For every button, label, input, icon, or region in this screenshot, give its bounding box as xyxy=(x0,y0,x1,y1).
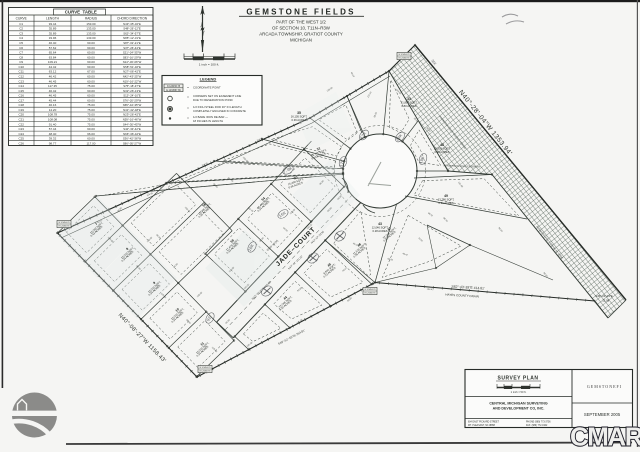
svg-text:N32°-26'-13"E: N32°-26'-13"E xyxy=(123,89,141,93)
svg-text:N85°-12'-31"E: N85°-12'-31"E xyxy=(123,36,141,40)
svg-text:1 inch = 100 ft.: 1 inch = 100 ft. xyxy=(199,63,220,67)
svg-text:N14°-30'-06"W: N14°-30'-06"W xyxy=(123,60,142,64)
svg-text:C17: C17 xyxy=(18,98,24,102)
svg-text:60.00: 60.00 xyxy=(87,75,95,79)
svg-text:N65°-42'-35"W: N65°-42'-35"W xyxy=(123,103,142,107)
svg-text:153.00: 153.00 xyxy=(86,22,96,26)
svg-text:60.00: 60.00 xyxy=(87,55,95,59)
svg-text:95.17: 95.17 xyxy=(517,294,523,296)
svg-text:S75°-18'-37"E: S75°-18'-37"E xyxy=(123,84,141,88)
svg-text:C9: C9 xyxy=(19,60,23,64)
svg-text:C11: C11 xyxy=(19,70,25,74)
svg-text:C23: C23 xyxy=(18,127,24,131)
svg-text:S76°-20'-29"W: S76°-20'-29"W xyxy=(123,98,142,102)
svg-text:C15: C15 xyxy=(18,89,24,93)
svg-text:S45°-23'-04"E: S45°-23'-04"E xyxy=(595,294,613,298)
svg-text:133.00: 133.00 xyxy=(86,27,96,31)
svg-text:75.00: 75.00 xyxy=(87,108,95,112)
svg-text:E 1234567.8: E 1234567.8 xyxy=(59,226,70,228)
svg-text:C6: C6 xyxy=(19,46,23,50)
svg-text:60.00: 60.00 xyxy=(87,60,95,64)
svg-text:C12: C12 xyxy=(18,75,24,79)
svg-text:C7: C7 xyxy=(19,51,23,55)
svg-text:46.16: 46.16 xyxy=(49,103,57,107)
svg-text:S37°-26'-44"E: S37°-26'-44"E xyxy=(123,46,141,50)
svg-text:46.45: 46.45 xyxy=(49,79,57,83)
svg-text:48: 48 xyxy=(440,143,444,147)
svg-text:N 123456.78: N 123456.78 xyxy=(200,367,211,369)
svg-text:C22: C22 xyxy=(18,122,24,126)
svg-text:117.00: 117.00 xyxy=(87,141,96,145)
svg-text:43: 43 xyxy=(378,222,382,226)
svg-text:0.43 ACRES: 0.43 ACRES xyxy=(434,150,449,154)
svg-text:OF SECTION 10, T11N–R3W: OF SECTION 10, T11N–R3W xyxy=(272,26,331,31)
svg-text:N 123456.78: N 123456.78 xyxy=(399,54,410,56)
svg-text:57.62: 57.62 xyxy=(49,46,57,50)
svg-text:60.00: 60.00 xyxy=(87,79,95,83)
svg-text:S42°-33'-42"E: S42°-33'-42"E xyxy=(123,127,141,131)
svg-text:21,891 SQFT,: 21,891 SQFT, xyxy=(401,101,418,105)
svg-text:PART OF THE WEST 1/2: PART OF THE WEST 1/2 xyxy=(276,20,326,25)
svg-text:60.00: 60.00 xyxy=(87,137,95,141)
svg-text:S48°-26'-12"E: S48°-26'-12"E xyxy=(123,27,141,31)
svg-text:S86°-05'-27"W: S86°-05'-27"W xyxy=(123,141,142,145)
svg-text:65.64: 65.64 xyxy=(49,51,57,55)
svg-text:33: 33 xyxy=(407,97,411,101)
svg-text:N19°-16'-22"W: N19°-16'-22"W xyxy=(123,79,142,83)
svg-text:0.31 ACRES: 0.31 ACRES xyxy=(438,201,453,205)
svg-text:E 1234567.8: E 1234567.8 xyxy=(399,58,410,60)
svg-text:N41°-42'-48"E: N41°-42'-48"E xyxy=(123,108,141,112)
svg-text:75.00: 75.00 xyxy=(87,103,95,107)
svg-text:46.42: 46.42 xyxy=(49,75,57,79)
svg-text:15,836 SQFT,: 15,836 SQFT, xyxy=(434,147,451,151)
svg-text:S87°-02'-21"E: S87°-02'-21"E xyxy=(123,41,141,45)
svg-text:46.40: 46.40 xyxy=(49,41,57,45)
svg-text:S21°-24'-35"W: S21°-24'-35"W xyxy=(123,51,142,55)
svg-text:60.00: 60.00 xyxy=(87,51,95,55)
svg-text:1 inch = 50 ft.: 1 inch = 50 ft. xyxy=(511,390,527,394)
svg-text:C20: C20 xyxy=(18,113,24,117)
svg-text:104.63: 104.63 xyxy=(427,289,435,291)
svg-text:N58°-51'-46"E: N58°-51'-46"E xyxy=(123,65,141,69)
svg-text:N 123456.78: N 123456.78 xyxy=(167,86,181,88)
svg-text:133.00: 133.00 xyxy=(86,32,96,36)
svg-text:FAX: (989) 772-1902: FAX: (989) 772-1902 xyxy=(526,424,548,427)
svg-text:C1: C1 xyxy=(19,22,23,26)
svg-text:0.28 ACRES: 0.28 ACRES xyxy=(372,229,387,233)
svg-text:33.96: 33.96 xyxy=(49,36,57,40)
svg-text:108.78: 108.78 xyxy=(48,113,58,117)
svg-text:E 1234567.89: E 1234567.89 xyxy=(166,90,181,92)
svg-text:60.00: 60.00 xyxy=(87,94,95,98)
svg-text:75.00: 75.00 xyxy=(87,118,95,122)
svg-text:35.89: 35.89 xyxy=(49,27,57,31)
svg-text:75.00: 75.00 xyxy=(87,84,95,88)
svg-text:60.00: 60.00 xyxy=(87,41,95,45)
svg-text:N66°-36'-42"E: N66°-36'-42"E xyxy=(123,132,141,136)
svg-text:N 123456.78: N 123456.78 xyxy=(59,222,70,224)
svg-text:0.50 ACRES: 0.50 ACRES xyxy=(401,104,416,108)
svg-text:C8: C8 xyxy=(19,55,23,59)
svg-text:35.89: 35.89 xyxy=(49,32,57,36)
svg-text:108.08: 108.08 xyxy=(48,118,58,122)
svg-text:48.40: 48.40 xyxy=(49,132,57,136)
svg-text:60.00: 60.00 xyxy=(87,65,95,69)
svg-text:C5: C5 xyxy=(19,41,23,45)
svg-text:CENTRAL MICHIGAN SURVEYING: CENTRAL MICHIGAN SURVEYING xyxy=(489,402,548,406)
svg-text:49: 49 xyxy=(444,194,448,198)
svg-text:C3: C3 xyxy=(19,32,23,36)
svg-text:16,105 SQFT,: 16,105 SQFT, xyxy=(291,115,308,119)
svg-text:N23°-26'-42"E: N23°-26'-42"E xyxy=(123,113,141,117)
svg-text:N42°-43'-25"W: N42°-43'-25"W xyxy=(123,75,142,79)
svg-text:18 INCHES IN LENGTH: 18 INCHES IN LENGTH xyxy=(193,119,223,123)
svg-text:12.98': 12.98' xyxy=(602,299,610,303)
svg-text:S12°-24'-10"E: S12°-24'-10"E xyxy=(123,94,141,98)
svg-text:60.00: 60.00 xyxy=(87,89,95,93)
svg-text:14.20: 14.20 xyxy=(49,108,57,112)
svg-text:46.42: 46.42 xyxy=(49,89,57,93)
svg-text:CHORD DIRECTION: CHORD DIRECTION xyxy=(117,17,148,21)
svg-text:C24: C24 xyxy=(18,132,24,136)
svg-text:LEGEND: LEGEND xyxy=(200,76,217,81)
svg-text:MT. PLEASANT, MI 48858: MT. PLEASANT, MI 48858 xyxy=(468,424,496,427)
svg-text:44.42: 44.42 xyxy=(49,65,57,69)
svg-text:604 EAST PICKARD STREET: 604 EAST PICKARD STREET xyxy=(468,421,500,424)
svg-text:AND DEVELOPMENT CO, INC.: AND DEVELOPMENT CO, INC. xyxy=(493,407,545,411)
svg-text:67.00: 67.00 xyxy=(87,70,95,74)
svg-text:C26: C26 xyxy=(18,141,24,145)
svg-text:46.45: 46.45 xyxy=(49,94,57,98)
svg-text:C25: C25 xyxy=(18,137,24,141)
svg-text:S83°-16'-29"W: S83°-16'-29"W xyxy=(123,55,142,59)
svg-text:=: = xyxy=(187,95,189,99)
svg-text:=: = xyxy=(187,116,189,120)
svg-text:LENGTH: LENGTH xyxy=(46,17,60,21)
svg-text:=: = xyxy=(187,86,189,90)
svg-text:60.00: 60.00 xyxy=(87,46,95,50)
svg-text:C18: C18 xyxy=(18,103,24,107)
svg-text:C16: C16 xyxy=(18,94,24,98)
svg-text:0.36 ACRES: 0.36 ACRES xyxy=(291,118,306,122)
svg-text:PHONE (989) 773-3756: PHONE (989) 773-3756 xyxy=(526,422,551,424)
svg-text:E 1234567.8: E 1234567.8 xyxy=(365,293,376,295)
svg-text:35: 35 xyxy=(297,111,301,115)
svg-text:109.21: 109.21 xyxy=(48,60,58,64)
svg-text:C14: C14 xyxy=(18,84,24,88)
svg-text:133.00: 133.00 xyxy=(86,36,96,40)
svg-text:GEMSTONE FIELDS: GEMSTONE FIELDS xyxy=(246,8,355,17)
svg-text:C2: C2 xyxy=(19,27,23,31)
svg-text:=: = xyxy=(187,106,189,110)
svg-text:91.40: 91.40 xyxy=(49,122,57,126)
svg-text:39.32: 39.32 xyxy=(49,137,57,141)
svg-text:117.35: 117.35 xyxy=(48,84,57,88)
svg-text:N59°-16'-46"W: N59°-16'-46"W xyxy=(123,118,142,122)
svg-text:SURVEY PLAN: SURVEY PLAN xyxy=(498,376,539,382)
svg-text:66.00: 66.00 xyxy=(87,132,95,136)
svg-text:C10: C10 xyxy=(18,65,24,69)
svg-text:C13: C13 xyxy=(18,79,24,83)
svg-text:45.44: 45.44 xyxy=(49,98,57,102)
svg-text:63.84: 63.84 xyxy=(49,55,57,59)
svg-text:RADIUS: RADIUS xyxy=(85,17,97,21)
svg-text:C21: C21 xyxy=(18,118,24,122)
svg-text:98.77: 98.77 xyxy=(49,141,57,145)
svg-text:60.00: 60.00 xyxy=(87,98,95,102)
svg-text:CURVE TABLE: CURVE TABLE xyxy=(65,10,97,15)
svg-text:N 123456.78: N 123456.78 xyxy=(365,289,376,291)
svg-text:CURVE: CURVE xyxy=(16,17,27,21)
svg-text:COMPLETELY ENCASED IN CONCR: COMPLETELY ENCASED IN CONCRETE xyxy=(193,109,246,113)
svg-text:63.12: 63.12 xyxy=(49,70,57,74)
svg-text:C19: C19 xyxy=(18,108,24,112)
svg-text:60.00: 60.00 xyxy=(87,127,95,131)
svg-text:S36°-42'-36"W: S36°-42'-36"W xyxy=(123,137,142,141)
svg-text:DUE TO RESERVATION POND: DUE TO RESERVATION POND xyxy=(193,98,233,102)
svg-text:SEPTEMBER 2005: SEPTEMBER 2005 xyxy=(584,412,621,417)
svg-text:G E M S T O N E F I: G E M S T O N E F I xyxy=(587,384,622,389)
svg-text:S62°-34'-57"E: S62°-34'-57"E xyxy=(123,32,141,36)
svg-text:13,786 SQFT,: 13,786 SQFT, xyxy=(438,198,455,202)
svg-text:75.00: 75.00 xyxy=(87,113,95,117)
svg-text:N27°-06'-42"E: N27°-06'-42"E xyxy=(123,70,141,74)
svg-text:N43°-35'-32"E: N43°-35'-32"E xyxy=(123,22,141,26)
svg-text:E 1234567.8: E 1234567.8 xyxy=(200,371,211,373)
svg-text:93.44: 93.44 xyxy=(49,22,57,26)
svg-text:ARCADA TOWNSHIP, GRATIOT CO: ARCADA TOWNSHIP, GRATIOT COUNTY xyxy=(259,32,343,37)
svg-text:C4: C4 xyxy=(19,36,23,40)
svg-text:CMAR: CMAR xyxy=(570,422,640,448)
svg-text:S44°-30'-45"W: S44°-30'-45"W xyxy=(123,122,142,126)
svg-text:COORDINATE POINT: COORDINATE POINT xyxy=(193,86,221,90)
svg-text:57.44: 57.44 xyxy=(49,127,57,131)
svg-text:75.00: 75.00 xyxy=(87,122,95,126)
svg-text:MICHIGAN: MICHIGAN xyxy=(290,38,312,43)
